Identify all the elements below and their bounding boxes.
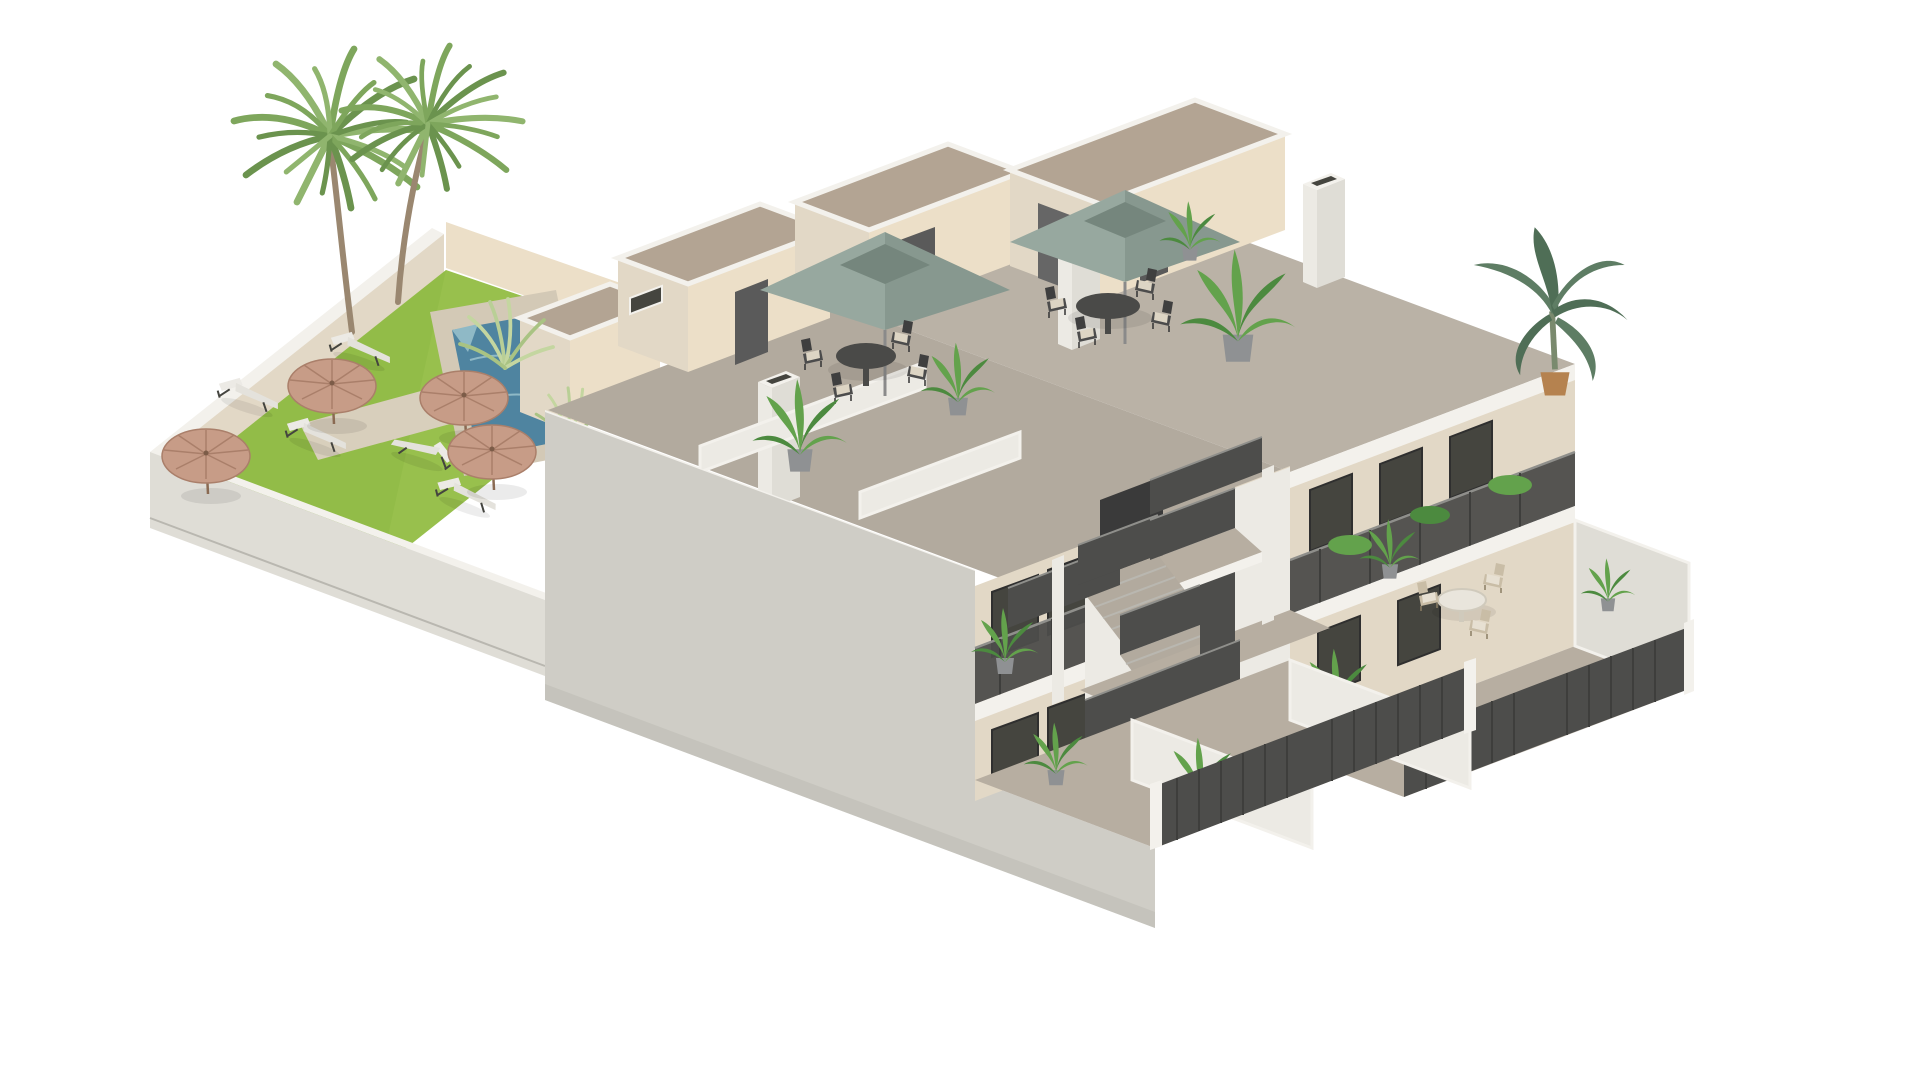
fence-end-post — [1150, 780, 1162, 850]
chimney — [1303, 173, 1345, 288]
railing-planter — [1488, 475, 1532, 495]
architectural-render — [0, 0, 1920, 1080]
roof-access-door — [735, 279, 768, 365]
fence-end-post — [1464, 658, 1476, 734]
building — [545, 100, 1694, 928]
railing-planter — [1328, 535, 1372, 555]
stair-column — [1262, 465, 1274, 625]
scene-canvas — [0, 0, 1920, 1080]
railing-planter — [1410, 506, 1450, 524]
outdoor-table — [836, 343, 896, 369]
stair-column — [1052, 555, 1064, 705]
fence-end-post — [1684, 619, 1694, 695]
round-table — [1438, 589, 1486, 611]
outdoor-table — [1076, 293, 1140, 319]
